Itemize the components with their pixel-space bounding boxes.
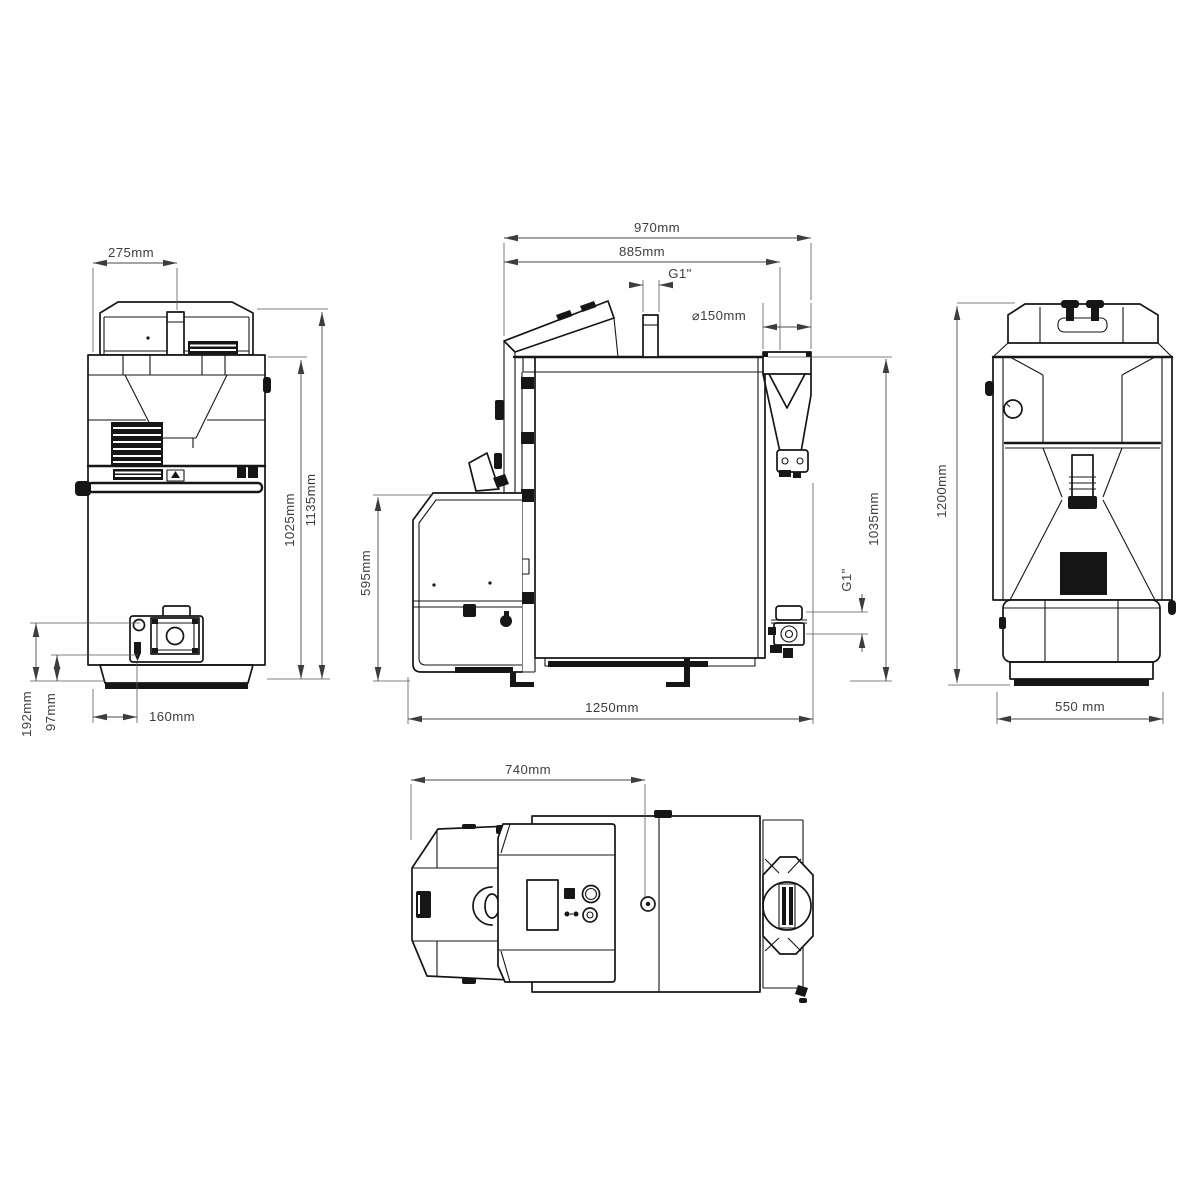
vent-grille <box>111 422 163 465</box>
door-handle <box>75 481 91 496</box>
ash-knob <box>500 615 512 627</box>
back-pipe-stub <box>985 381 994 396</box>
side-pipe-stub <box>263 377 271 393</box>
back-view: 1200mm 550 mm <box>934 300 1176 724</box>
top-view: 740mm <box>411 762 813 1003</box>
ash-knob <box>463 604 476 617</box>
dim-front-total-height: 1135mm <box>303 474 318 527</box>
cap-bolt-dot <box>146 336 149 339</box>
boiler-drawing: 275mm 1025mm 1135mm 192mm 97mm 160mm <box>0 0 1200 1200</box>
front-view: 275mm 1025mm 1135mm 192mm 97mm 160mm <box>19 245 330 737</box>
side-view: 970mm 885mm G1" ⌀150mm 595mm 1035mm G1" <box>358 220 892 724</box>
dim-side-depth-top: 970mm <box>634 220 680 235</box>
flow-pipe-top <box>643 315 658 357</box>
dim-side-burner-height: 595mm <box>358 550 373 596</box>
back-base <box>999 600 1176 686</box>
flue-opening-back <box>1060 552 1107 595</box>
hopper-top-cap <box>100 302 253 355</box>
dim-side-flow-connection: G1" <box>668 266 691 281</box>
burner-top <box>412 824 510 984</box>
plinth <box>100 665 253 683</box>
dim-front-connector-height: 192mm <box>19 691 34 737</box>
dim-side-connection-height: 1035mm <box>866 492 881 546</box>
dim-back-width: 550 mm <box>1055 699 1105 714</box>
boiler-body-side <box>510 357 765 687</box>
dim-back-total-height: 1200mm <box>934 464 949 518</box>
cap-knob <box>1086 300 1104 308</box>
burner-unit-side <box>413 453 522 673</box>
door-latch-side <box>495 400 504 420</box>
dim-front-body-height: 1025mm <box>282 493 297 547</box>
return-fitting <box>768 606 807 658</box>
door-hinge <box>248 467 258 478</box>
flue-assembly <box>763 352 811 478</box>
hopper-lid <box>504 301 618 357</box>
dim-side-return-connection: G1" <box>839 568 854 591</box>
dim-front-lever-height: 97mm <box>43 693 58 731</box>
control-panel-top <box>498 824 615 982</box>
dim-front-top-offset: 275mm <box>108 245 154 260</box>
dim-side-depth-total: 1250mm <box>585 700 639 715</box>
back-connection-pipe <box>1068 455 1097 509</box>
top-tab <box>654 810 672 818</box>
back-top-cap <box>993 300 1172 357</box>
panel-button <box>564 888 575 899</box>
dim-front-burner-offset: 160mm <box>149 709 195 724</box>
door-hinge <box>237 467 246 478</box>
flue-top <box>763 820 813 1003</box>
dim-side-flue-diameter: ⌀150mm <box>692 308 746 323</box>
dim-top-front-depth: 740mm <box>505 762 551 777</box>
technical-drawing-page: 275mm 1025mm 1135mm 192mm 97mm 160mm <box>0 0 1200 1200</box>
cap-knob <box>1061 300 1079 308</box>
dim-side-depth-lid: 885mm <box>619 244 665 259</box>
